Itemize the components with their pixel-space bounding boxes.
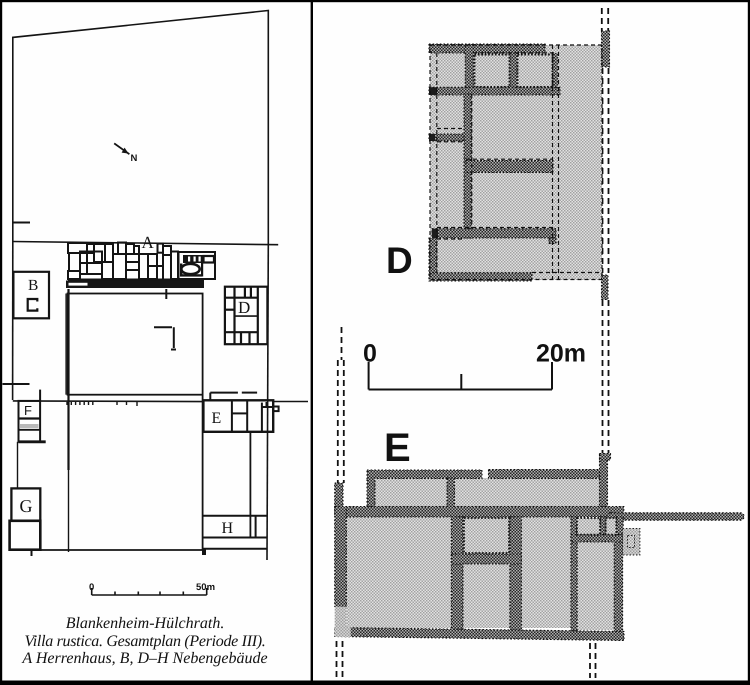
svg-text:50m: 50m bbox=[196, 582, 215, 593]
svg-text:0: 0 bbox=[89, 582, 94, 593]
svg-text:E: E bbox=[212, 410, 222, 427]
svg-text:E: E bbox=[384, 426, 411, 470]
svg-text:Villa rustica. Gesamtplan (Per: Villa rustica. Gesamtplan (Periode III). bbox=[25, 633, 266, 650]
svg-text:H: H bbox=[222, 520, 234, 537]
svg-text:D: D bbox=[386, 240, 413, 281]
svg-text:D: D bbox=[238, 298, 250, 317]
svg-text:A Herrenhaus, B, D–H Nebengebä: A Herrenhaus, B, D–H Nebengebäude bbox=[21, 650, 267, 667]
svg-text:B: B bbox=[28, 277, 38, 294]
svg-text:A: A bbox=[142, 233, 155, 252]
svg-text:F: F bbox=[24, 403, 32, 418]
svg-text:0: 0 bbox=[363, 340, 377, 368]
svg-text:Blankenheim-Hülchrath.: Blankenheim-Hülchrath. bbox=[66, 615, 225, 632]
svg-text:20m: 20m bbox=[536, 340, 586, 368]
svg-text:N: N bbox=[131, 153, 138, 164]
svg-text:G: G bbox=[20, 496, 33, 516]
